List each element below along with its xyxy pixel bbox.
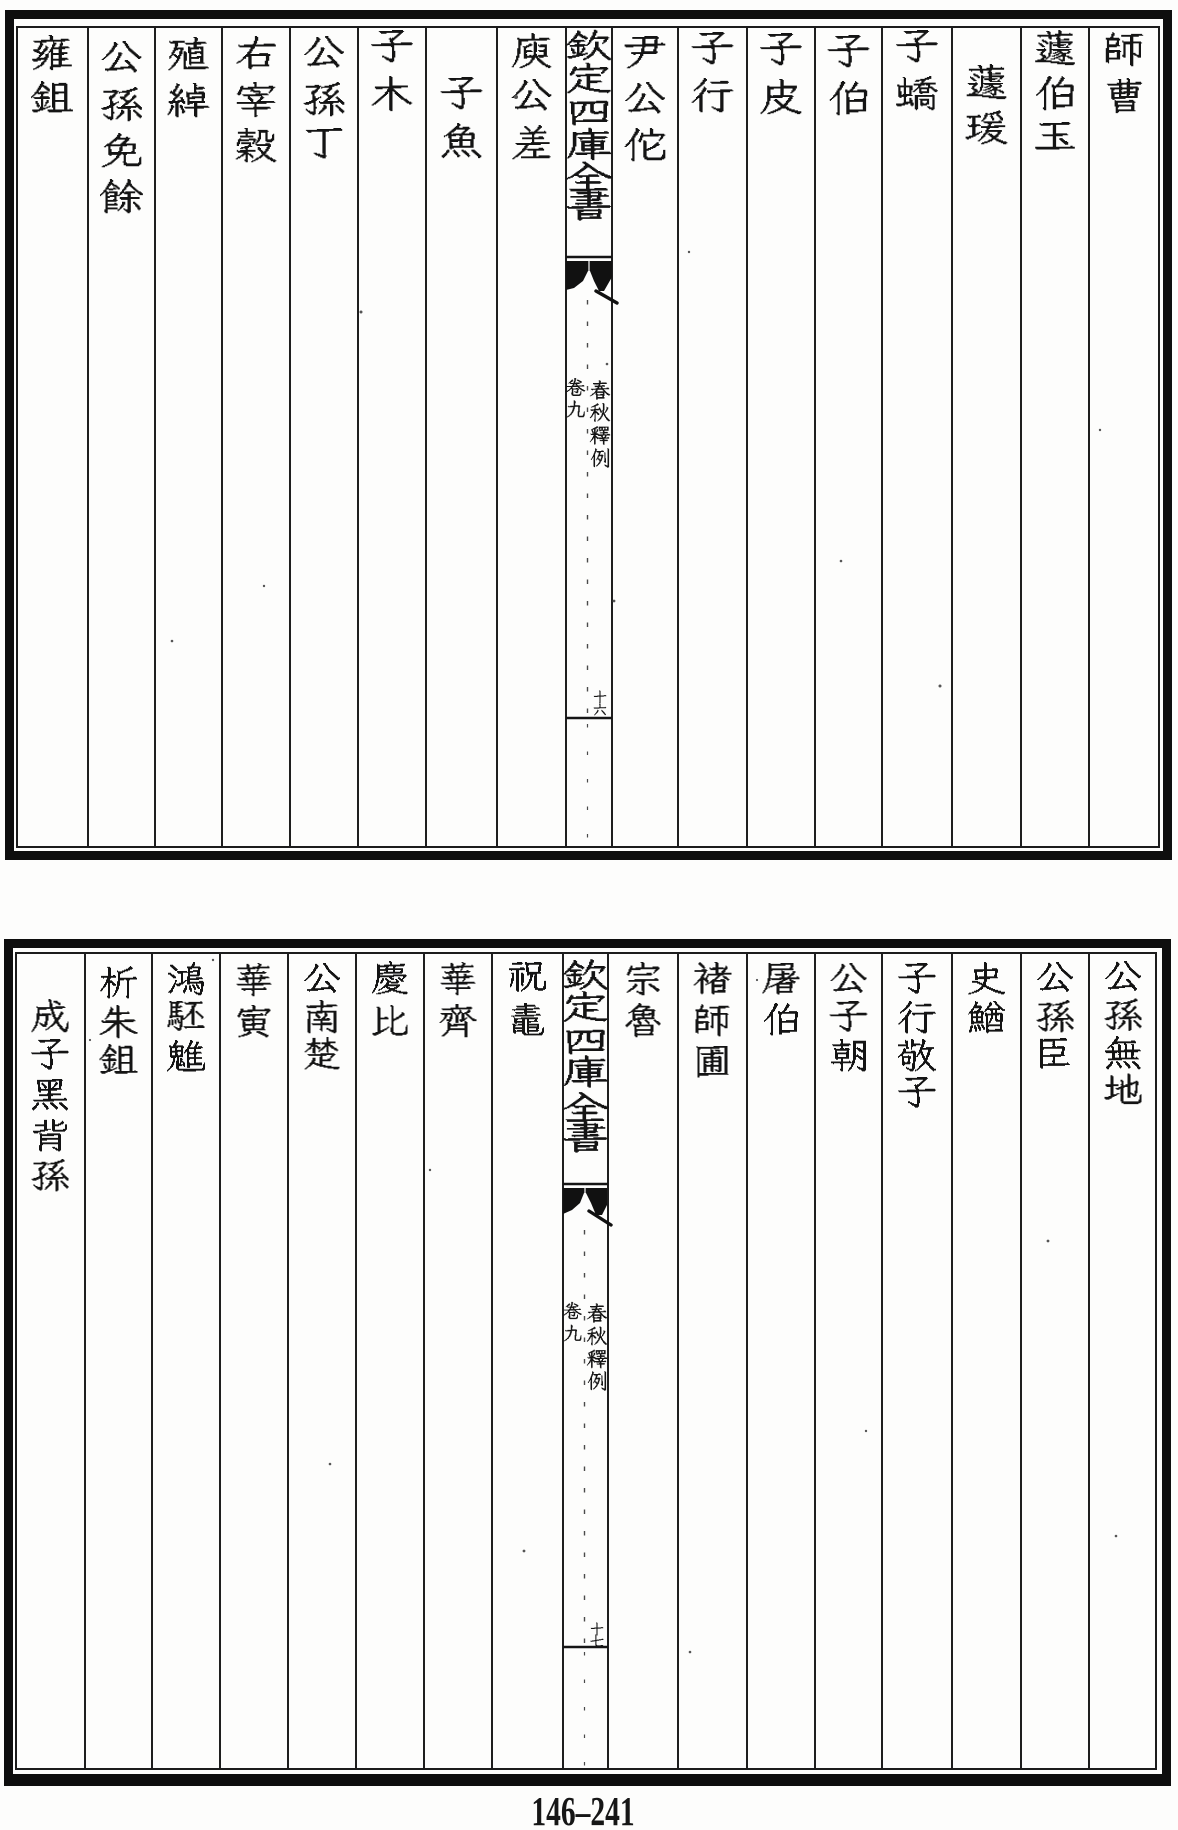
svg-text:146–241: 146–241	[531, 1788, 634, 1830]
